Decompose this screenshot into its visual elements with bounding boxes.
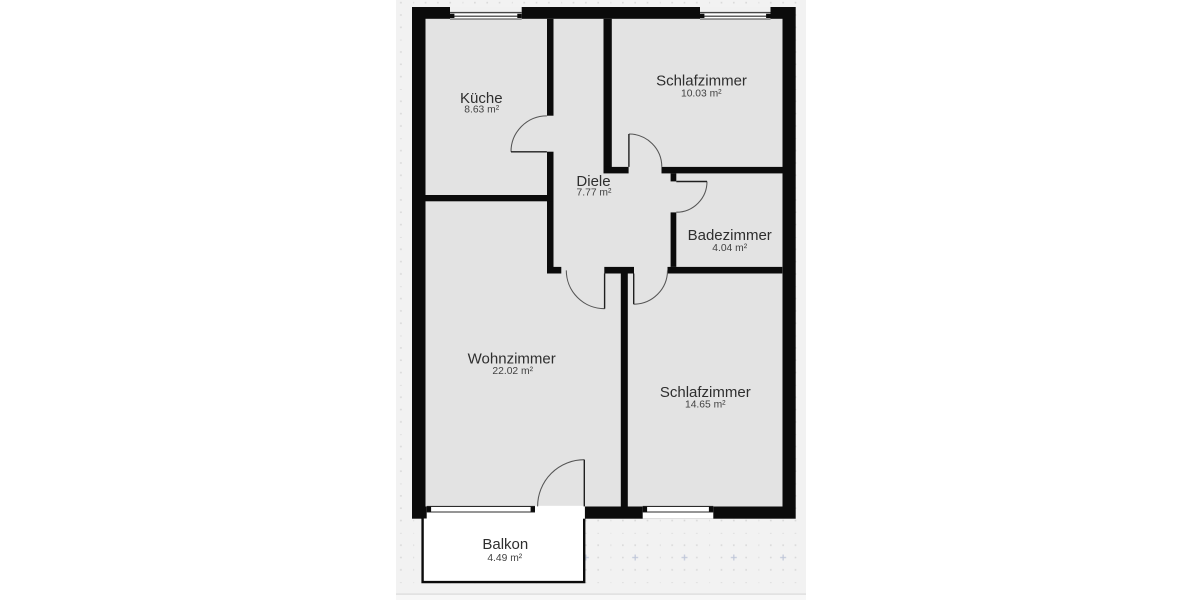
- svg-text:Badezimmer: Badezimmer: [688, 227, 772, 244]
- svg-text:8.63 m²: 8.63 m²: [464, 105, 499, 116]
- svg-text:4.49 m²: 4.49 m²: [487, 553, 522, 564]
- svg-text:Balkon: Balkon: [482, 536, 528, 553]
- svg-text:14.65 m²: 14.65 m²: [685, 400, 726, 411]
- svg-text:Schlafzimmer: Schlafzimmer: [656, 72, 747, 89]
- svg-text:Wohnzimmer: Wohnzimmer: [468, 351, 556, 368]
- svg-text:7.77 m²: 7.77 m²: [577, 187, 612, 198]
- svg-text:Schlafzimmer: Schlafzimmer: [660, 384, 751, 401]
- svg-text:22.02 m²: 22.02 m²: [492, 366, 533, 377]
- svg-text:10.03 m²: 10.03 m²: [681, 88, 722, 99]
- svg-text:4.04 m²: 4.04 m²: [712, 243, 747, 254]
